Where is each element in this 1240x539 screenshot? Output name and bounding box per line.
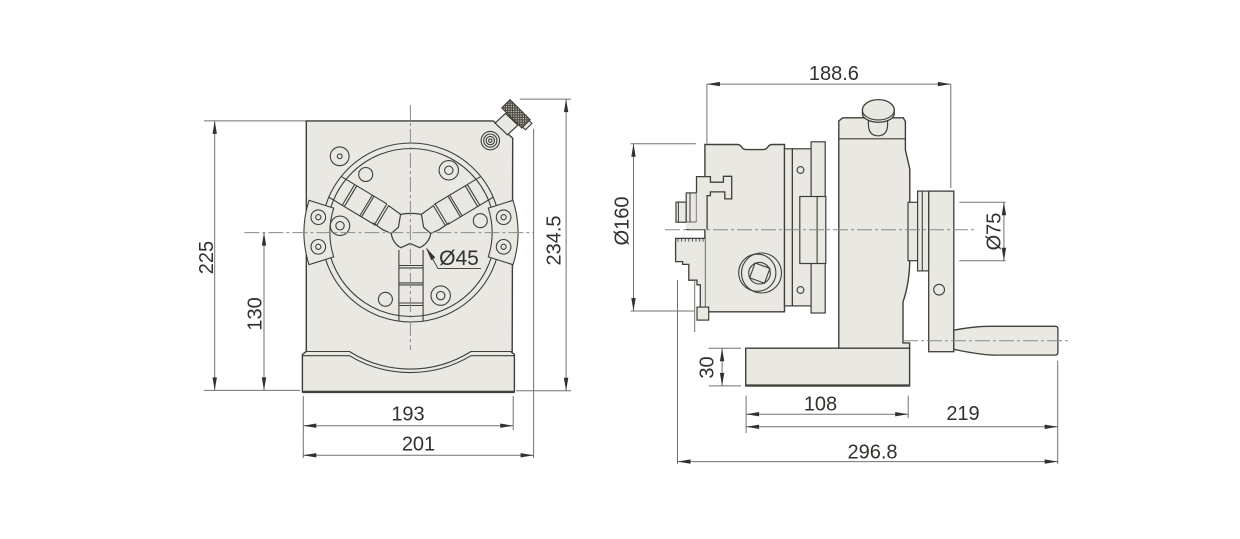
svg-text:188.6: 188.6 — [809, 63, 859, 85]
svg-text:Ø160: Ø160 — [611, 197, 633, 246]
svg-text:225: 225 — [196, 241, 218, 274]
svg-text:30: 30 — [696, 356, 718, 378]
svg-text:108: 108 — [804, 394, 837, 416]
svg-text:201: 201 — [402, 433, 435, 455]
svg-text:Ø75: Ø75 — [984, 213, 1006, 251]
svg-text:Ø45: Ø45 — [439, 247, 479, 270]
svg-text:219: 219 — [946, 403, 979, 425]
svg-text:296.8: 296.8 — [847, 442, 897, 464]
svg-text:130: 130 — [245, 297, 267, 330]
svg-text:193: 193 — [391, 404, 424, 426]
svg-text:234.5: 234.5 — [544, 215, 566, 265]
